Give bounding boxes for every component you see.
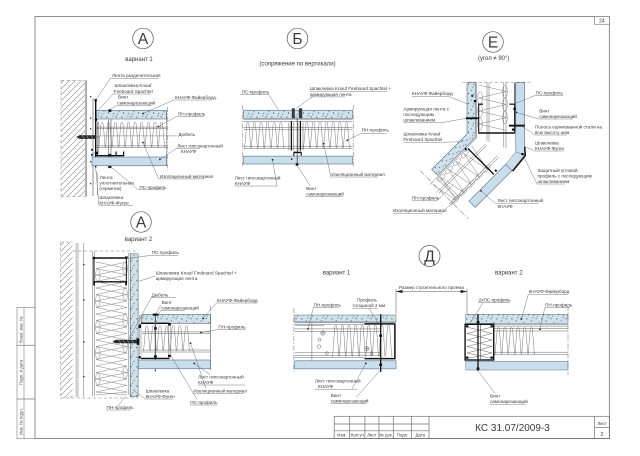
svg-text:Изоляционный материал: Изоляционный материал — [393, 207, 447, 213]
svg-text:Винт: Винт — [331, 393, 342, 398]
svg-text:самонарезающий: самонарезающий — [539, 113, 577, 119]
svg-text:шпаклеванием: шпаклеванием — [403, 118, 435, 123]
svg-text:уплотнительная: уплотнительная — [99, 181, 134, 186]
svg-text:2: 2 — [601, 432, 604, 438]
svg-text:Шпаклевка Knauf Fireboard Spac: Шпаклевка Knauf Fireboard Spachtel + — [310, 86, 391, 91]
svg-text:Лист гипсокартонный: Лист гипсокартонный — [315, 378, 361, 384]
svg-text:армирующая лента: армирующая лента — [310, 92, 352, 97]
svg-text:(угол ≠ 90°): (угол ≠ 90°) — [478, 56, 509, 62]
svg-text:Винт: Винт — [306, 186, 317, 191]
svg-text:Винт: Винт — [539, 109, 550, 114]
svg-text:КНАУФ-Файерборд: КНАУФ-Файерборд — [217, 297, 258, 303]
svg-text:ПС-профиль: ПС-профиль — [152, 250, 180, 255]
svg-text:24: 24 — [599, 19, 605, 25]
svg-text:Б: Б — [292, 31, 302, 48]
svg-text:КНАУФ: КНАУФ — [235, 181, 251, 186]
svg-text:(герметик): (герметик) — [99, 186, 121, 191]
svg-text:КНАУФ-Файерборд: КНАУФ-Файерборд — [529, 288, 570, 294]
svg-text:Лист: Лист — [367, 433, 376, 438]
svg-text:самонарезающий: самонарезающий — [161, 305, 199, 311]
svg-text:Шпаклевка: Шпаклевка — [146, 389, 170, 394]
svg-text:Инв. № подл.: Инв. № подл. — [18, 408, 23, 435]
svg-text:Винт: Винт — [118, 94, 129, 99]
svg-text:Подп. и дата: Подп. и дата — [18, 359, 23, 385]
svg-text:ПН-профиль: ПН-профиль — [545, 303, 573, 308]
svg-text:Дата: Дата — [415, 433, 425, 438]
svg-text:Д: Д — [424, 249, 435, 266]
svg-text:Шпаклевка Knauf: Шпаклевка Knauf — [115, 83, 153, 88]
svg-text:ПН-профиль: ПН-профиль — [218, 325, 246, 330]
svg-text:КНАУФ: КНАУФ — [198, 380, 214, 385]
svg-text:Е: Е — [488, 34, 498, 51]
svg-text:Защитный угловой: Защитный угловой — [538, 167, 579, 173]
svg-text:ПН-профиль: ПН-профиль — [314, 303, 342, 308]
svg-text:КНАУФ-Фуген: КНАУФ-Фуген — [535, 146, 565, 151]
svg-text:ПН-профиль: ПН-профиль — [362, 127, 390, 132]
svg-text:Изоляционный материал: Изоляционный материал — [331, 171, 385, 177]
svg-text:(сопряжение по вертикали): (сопряжение по вертикали) — [259, 62, 335, 68]
svg-text:Лист гипсокартонный: Лист гипсокартонный — [177, 143, 223, 149]
svg-text:ПС-профиль: ПС-профиль — [242, 90, 270, 95]
svg-text:Размер строительного проема: Размер строительного проема — [399, 285, 464, 290]
svg-text:последующим: последующим — [403, 112, 433, 117]
svg-text:КС 31.07/2009-3: КС 31.07/2009-3 — [475, 423, 550, 434]
svg-text:Изоляционный материал: Изоляционный материал — [193, 388, 247, 394]
svg-text:Лента: Лента — [100, 175, 113, 180]
svg-text:вариант 1: вариант 1 — [323, 271, 351, 277]
svg-text:КНАУФ-Фуген: КНАУФ-Фуген — [99, 200, 129, 205]
svg-text:ПН-профиль: ПН-профиль — [412, 196, 440, 201]
svg-text:Лист гипсокартонный: Лист гипсокартонный — [235, 175, 281, 181]
svg-text:ПС-профиль: ПС-профиль — [139, 185, 167, 190]
svg-text:Армирующая лента с: Армирующая лента с — [403, 107, 449, 112]
svg-text:профиль с последующим: профиль с последующим — [538, 174, 592, 179]
svg-text:толщиной 2 мм: толщиной 2 мм — [353, 302, 386, 308]
svg-text:ПС-профиль: ПС-профиль — [536, 91, 564, 96]
svg-text:Шпаклевка: Шпаклевка — [535, 141, 559, 146]
svg-text:самонарезающий: самонарезающий — [117, 100, 155, 106]
svg-text:Лист гипсокартонный: Лист гипсокартонный — [498, 197, 544, 203]
svg-text:Подп.: Подп. — [397, 433, 408, 438]
svg-text:Лист гипсокартонный: Лист гипсокартонный — [198, 374, 244, 380]
svg-text:КНАУФ: КНАУФ — [318, 384, 334, 389]
svg-text:ПН-профиль: ПН-профиль — [107, 405, 135, 410]
svg-text:шпаклеванием: шпаклеванием — [538, 179, 570, 184]
svg-text:Полоса оцинкованной стали на: Полоса оцинкованной стали на — [535, 124, 602, 130]
svg-text:Лист: Лист — [597, 421, 606, 426]
svg-text:Шпаклевка Knauf: Шпаклевка Knauf — [403, 132, 441, 137]
svg-text:армирующая лента: армирующая лента — [156, 276, 198, 281]
svg-text:Винт: Винт — [490, 394, 501, 399]
svg-text:КНАУФ: КНАУФ — [498, 204, 514, 209]
svg-text:А: А — [138, 31, 149, 48]
svg-text:вариант 1: вариант 1 — [125, 57, 153, 63]
svg-text:Fireboard Spachtel: Fireboard Spachtel — [403, 137, 442, 142]
svg-text:Изм.: Изм. — [337, 433, 346, 438]
svg-text:Профиль: Профиль — [357, 298, 377, 303]
svg-text:КНАУФ-Файерборд.: КНАУФ-Файерборд. — [175, 94, 217, 100]
svg-text:самонарезающий: самонарезающий — [331, 398, 369, 404]
svg-text:2хПС-профиль: 2хПС-профиль — [479, 298, 512, 303]
svg-text:Шпаклевка: Шпаклевка — [99, 195, 123, 200]
svg-text:всю высоту шва: всю высоту шва — [535, 130, 570, 135]
svg-text:самонарезающий: самонарезающий — [306, 191, 344, 197]
svg-text:вариант 2: вариант 2 — [495, 271, 523, 277]
svg-text:Кол.уч: Кол.уч — [351, 433, 364, 438]
svg-text:КНАУФ-Фуген: КНАУФ-Фуген — [146, 394, 176, 399]
svg-text:Дюбель: Дюбель — [152, 292, 169, 297]
svg-text:ПН-профиль: ПН-профиль — [178, 111, 206, 116]
svg-text:Шпаклевка Knauf Fireboard Spac: Шпаклевка Knauf Fireboard Spachtel + — [156, 271, 237, 276]
svg-text:КНАУФ: КНАУФ — [181, 149, 197, 154]
svg-text:Дюбель: Дюбель — [178, 132, 195, 137]
svg-text:ПС-профиль: ПС-профиль — [190, 400, 218, 405]
svg-text:№ док.: № док. — [379, 433, 393, 438]
svg-text:Взам. инв. №: Взам. инв. № — [18, 316, 23, 343]
svg-text:Fireboard Spachtel: Fireboard Spachtel — [114, 89, 153, 94]
svg-text:А: А — [136, 214, 147, 231]
svg-text:самонарезающий: самонарезающий — [490, 398, 528, 404]
svg-text:Лента разделительная: Лента разделительная — [112, 73, 161, 78]
svg-text:КНАУФ-Файерборд: КНАУФ-Файерборд — [412, 90, 453, 96]
svg-text:Винт: Винт — [162, 300, 173, 305]
svg-text:Изоляционный материал: Изоляционный материал — [160, 173, 214, 179]
svg-text:вариант 2: вариант 2 — [125, 237, 153, 243]
